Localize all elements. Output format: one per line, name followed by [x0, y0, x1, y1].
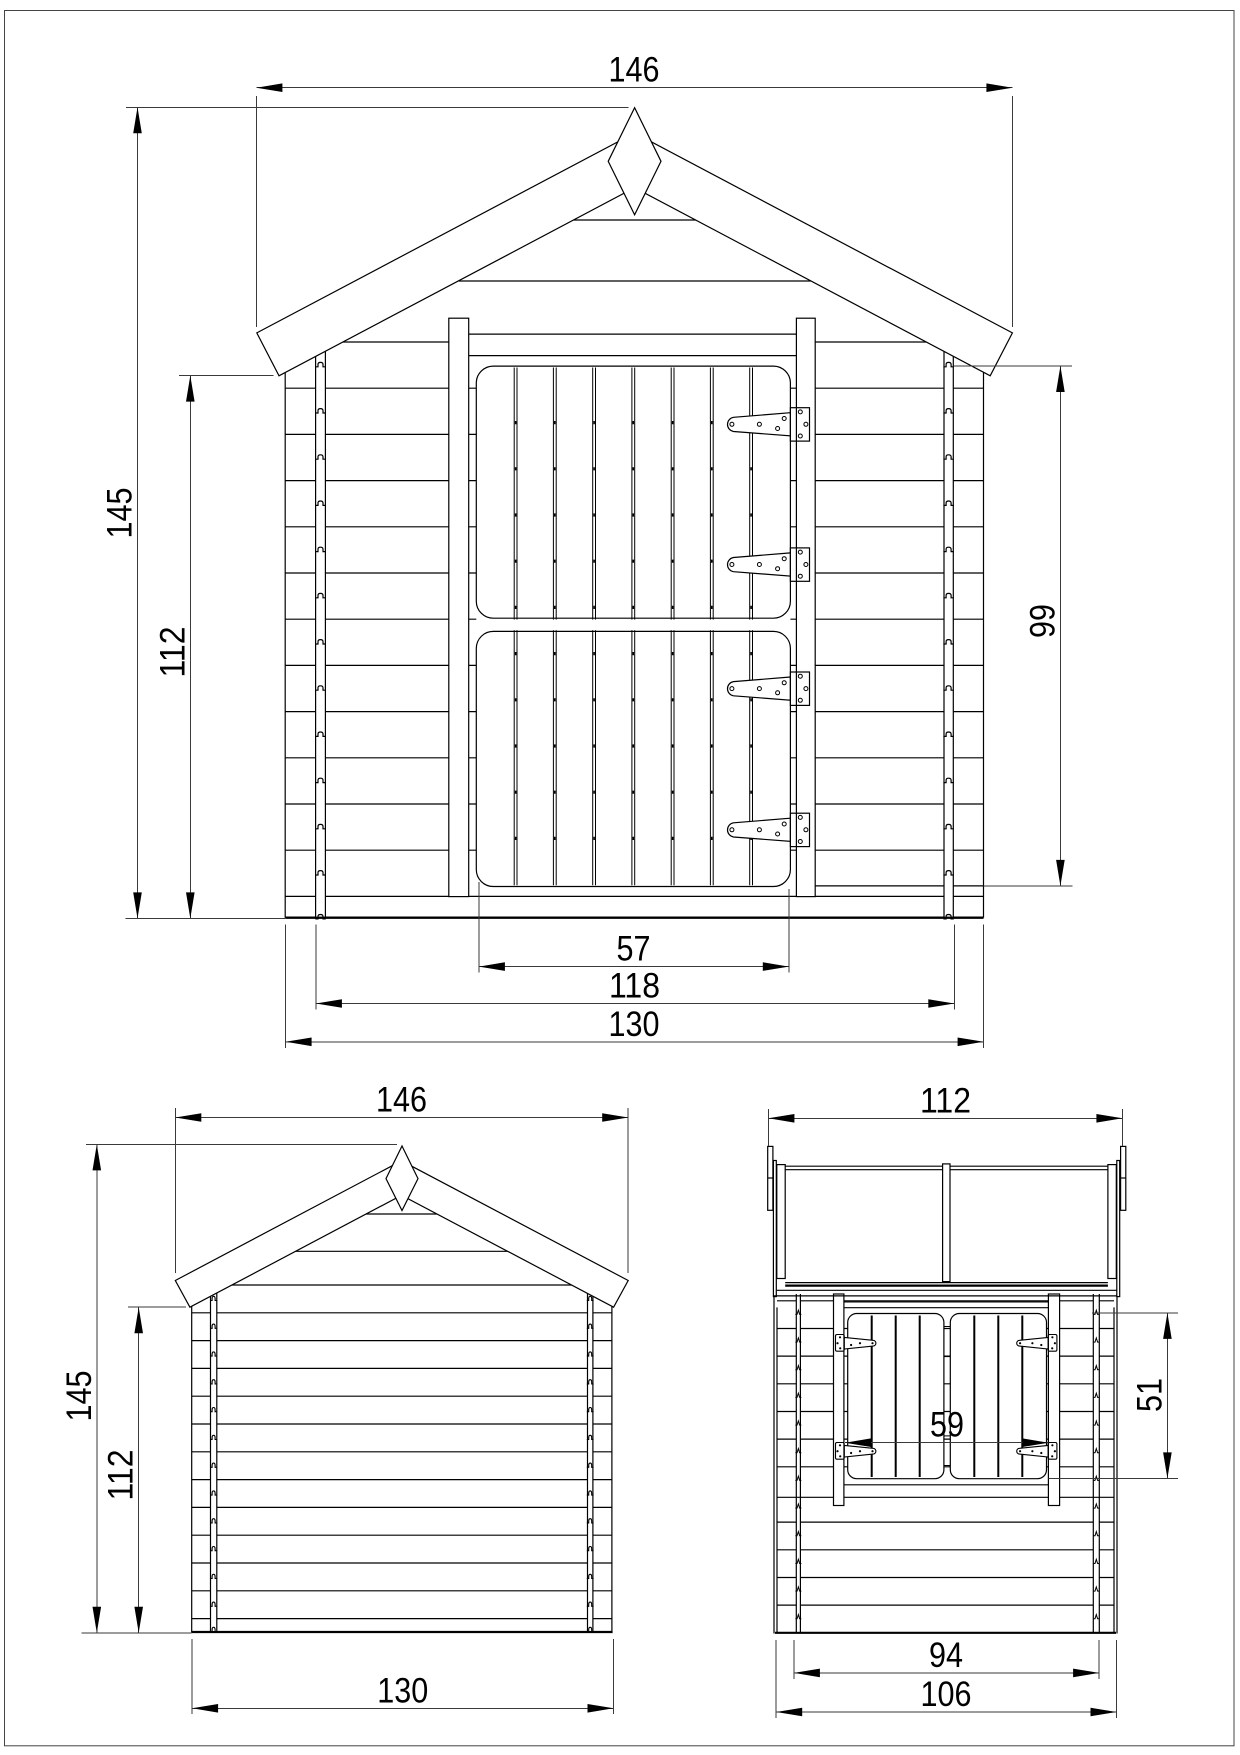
svg-text:112: 112	[153, 627, 192, 678]
svg-text:146: 146	[376, 1081, 427, 1120]
svg-text:94: 94	[929, 1636, 963, 1675]
svg-text:59: 59	[930, 1406, 964, 1445]
svg-text:106: 106	[921, 1675, 972, 1714]
svg-text:112: 112	[920, 1081, 971, 1120]
svg-text:57: 57	[617, 930, 651, 969]
svg-text:145: 145	[60, 1371, 99, 1422]
svg-text:145: 145	[101, 488, 140, 539]
svg-text:130: 130	[609, 1005, 660, 1044]
svg-text:118: 118	[609, 967, 660, 1006]
svg-text:112: 112	[102, 1450, 141, 1501]
svg-text:51: 51	[1130, 1378, 1169, 1412]
svg-text:99: 99	[1023, 604, 1062, 638]
svg-text:130: 130	[377, 1671, 428, 1710]
svg-text:146: 146	[609, 51, 660, 90]
